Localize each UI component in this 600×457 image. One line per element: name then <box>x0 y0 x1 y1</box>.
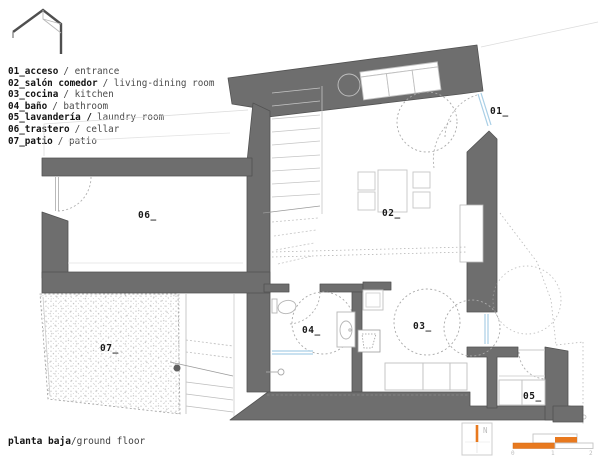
wall-mid-vertical <box>247 103 270 392</box>
wall-bath-top-b <box>320 284 363 292</box>
room-label-05: 05_ <box>523 391 542 402</box>
kitchen-sink <box>358 330 380 352</box>
wall-patio-top <box>42 272 270 293</box>
wall-bottom-right-foot <box>553 406 583 422</box>
floor-plan: 01_ 02_ 03_ 04_ 05_ 06_ 07_ N 0 1 2 <box>0 0 600 457</box>
room-label-07: 07_ <box>100 343 119 354</box>
dining-table <box>358 170 430 212</box>
wall-top <box>228 45 483 117</box>
wall-niche <box>460 205 483 262</box>
scale-tick-2: 2 <box>589 450 593 457</box>
wall-kitchen-top <box>363 282 391 290</box>
floor-dotted-lines <box>272 247 467 257</box>
drawing-title-en: /ground floor <box>71 436 145 447</box>
room-label-03: 03_ <box>413 321 432 332</box>
wall-room06-top <box>42 158 252 176</box>
column-icon <box>174 365 181 372</box>
room-label-01: 01_ <box>490 106 509 117</box>
room-label-04: 04_ <box>302 325 321 336</box>
turning-circles <box>292 92 561 356</box>
patio <box>40 294 180 414</box>
drawing-title: planta baja/ground floor <box>8 436 145 447</box>
north-indicator: N <box>462 423 492 455</box>
drawing-title-es: planta baja <box>8 436 71 447</box>
bathroom-sink <box>337 312 355 347</box>
door-leaf <box>56 177 59 211</box>
scale-tick-1: 1 <box>551 450 555 457</box>
room-label-02: 02_ <box>382 208 401 219</box>
scale-bar: 0 1 2 <box>511 434 593 457</box>
north-label: N <box>483 426 488 435</box>
room-label-06: 06_ <box>138 210 157 221</box>
wall-left-lower <box>42 212 68 278</box>
window-lines <box>272 93 491 354</box>
wall-bath-top-a <box>264 284 289 292</box>
scale-tick-0: 0 <box>511 450 515 457</box>
